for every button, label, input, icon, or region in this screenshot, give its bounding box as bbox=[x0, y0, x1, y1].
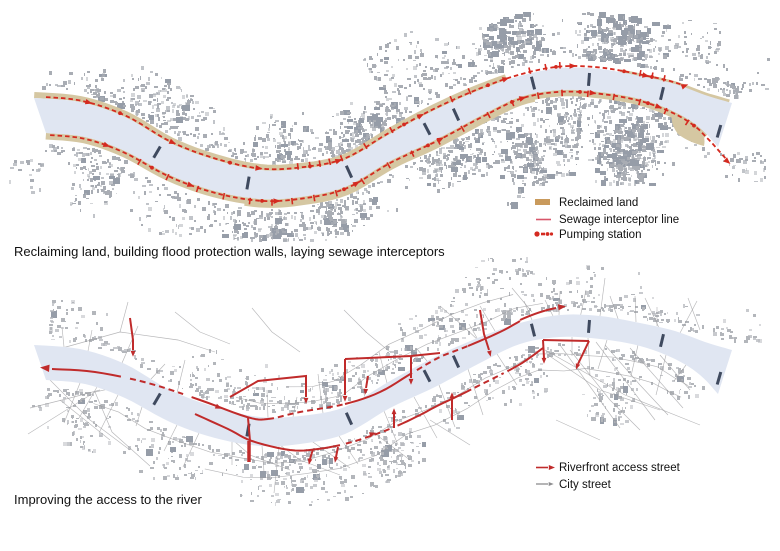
svg-text:Reclaiming land, building floo: Reclaiming land, building flood protecti… bbox=[14, 244, 445, 259]
svg-text:Pumping station: Pumping station bbox=[559, 229, 641, 241]
svg-text:Sewage interceptor line: Sewage interceptor line bbox=[559, 214, 679, 226]
svg-text:City street: City street bbox=[559, 479, 612, 491]
svg-text:Riverfront access street: Riverfront access street bbox=[559, 462, 681, 474]
svg-text:Reclaimed land: Reclaimed land bbox=[559, 197, 638, 209]
svg-text:Improving the access to the ri: Improving the access to the river bbox=[14, 492, 203, 507]
